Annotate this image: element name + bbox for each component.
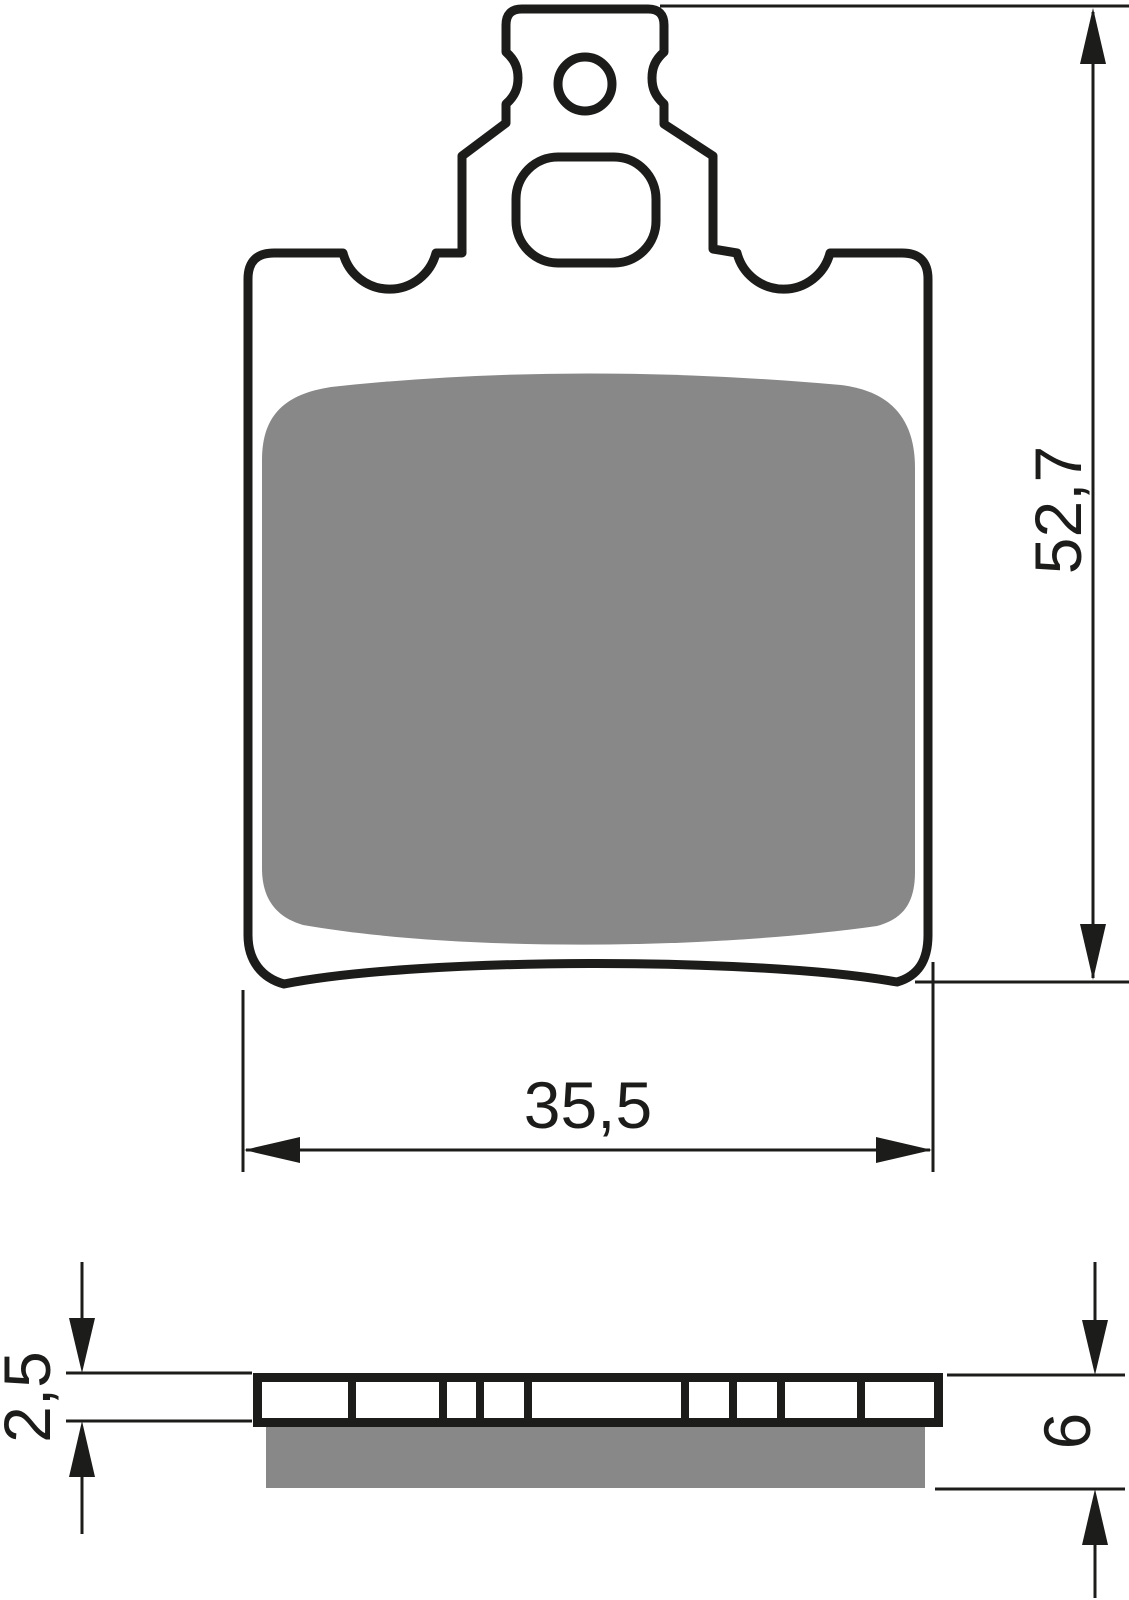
dim-label-total-thickness: 6 — [1030, 1413, 1104, 1450]
arrowhead-up — [1082, 1489, 1108, 1545]
friction-material-front — [262, 373, 915, 944]
arrowhead-right — [876, 1137, 932, 1163]
dim-label-width: 35,5 — [524, 1068, 652, 1142]
drawing-canvas: 52,7 35,5 — [0, 0, 1129, 1600]
dim-backplate-thickness: 2,5 — [0, 1262, 252, 1534]
arrowhead-up — [69, 1421, 95, 1477]
dim-label-backplate-thickness: 2,5 — [0, 1351, 64, 1443]
dim-label-height: 52,7 — [1021, 446, 1095, 574]
arrowhead-up — [1080, 8, 1106, 64]
dim-total-thickness: 6 — [935, 1262, 1125, 1598]
pad-side-view — [258, 1378, 939, 1489]
arrowhead-down — [1082, 1320, 1108, 1375]
dim-pad-width: 35,5 — [243, 962, 933, 1172]
friction-material-side — [266, 1427, 925, 1488]
arrowhead-down — [69, 1318, 95, 1373]
backplate-side — [258, 1378, 939, 1423]
slot-hole — [516, 157, 656, 263]
pilot-hole — [558, 57, 612, 111]
arrowhead-down — [1080, 924, 1106, 980]
technical-drawing-page: 52,7 35,5 — [0, 0, 1129, 1600]
pad-front-view — [248, 9, 928, 984]
arrowhead-left — [244, 1137, 300, 1163]
